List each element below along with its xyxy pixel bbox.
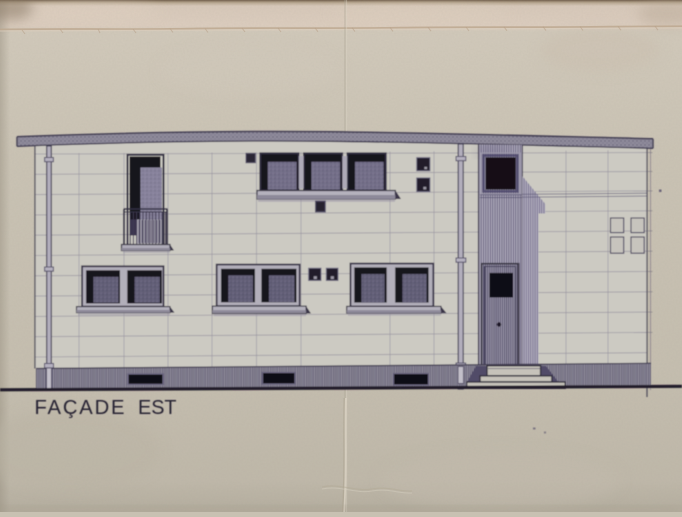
svg-text:EST: EST <box>138 397 177 419</box>
svg-text:FAÇADE: FAÇADE <box>35 397 125 419</box>
